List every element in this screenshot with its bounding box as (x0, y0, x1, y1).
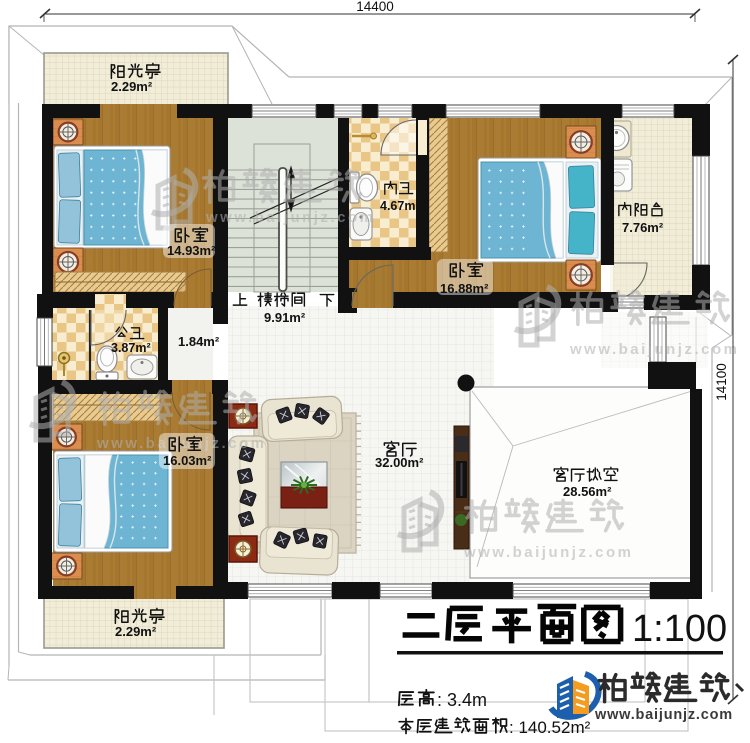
svg-text:2.29m²: 2.29m² (115, 624, 157, 639)
svg-text:www.baijunjz.com: www.baijunjz.com (569, 341, 739, 358)
svg-text:14.93m²: 14.93m² (167, 243, 216, 258)
svg-text:www.baijunjz.com: www.baijunjz.com (463, 544, 633, 561)
svg-text:9.91m²: 9.91m² (264, 310, 306, 325)
svg-text:: 3.4m: : 3.4m (437, 690, 487, 710)
svg-text:www.baijunjz.com: www.baijunjz.com (205, 209, 375, 226)
svg-text:: 140.52m²: : 140.52m² (509, 718, 591, 737)
svg-text:1:100: 1:100 (632, 608, 727, 650)
svg-text:28.56m²: 28.56m² (563, 484, 612, 499)
svg-text:4.67m²: 4.67m² (380, 199, 420, 213)
svg-text:2.29m²: 2.29m² (111, 79, 153, 94)
svg-text:1.84m²: 1.84m² (178, 334, 220, 349)
svg-text:16.88m²: 16.88m² (440, 281, 489, 296)
svg-text:32.00m²: 32.00m² (375, 455, 424, 470)
svg-text:3.87m²: 3.87m² (111, 341, 151, 355)
svg-text:16.03m²: 16.03m² (163, 453, 212, 468)
svg-text:www.baijunjz.com: www.baijunjz.com (594, 707, 733, 723)
svg-text:14400: 14400 (356, 0, 394, 14)
svg-text:14100: 14100 (714, 363, 729, 401)
svg-text:7.76m²: 7.76m² (622, 220, 664, 235)
